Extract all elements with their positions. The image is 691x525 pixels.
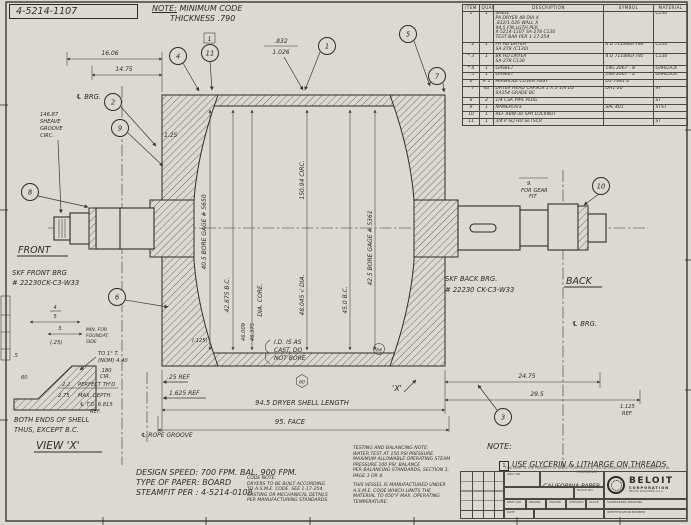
sheave-groove-callout: 146.87 SHEAVE GROOVE CIRC. — [40, 112, 63, 213]
drawing-sheet: 16.06 14.75 .832 1.026 1.25 40.5 BORE GA… — [0, 0, 691, 525]
svg-text:.5: .5 — [13, 353, 19, 359]
company-name: BELOIT — [629, 477, 674, 486]
svg-text:I.D. IS AS: I.D. IS AS — [274, 339, 302, 346]
svg-text:MIN. FOR: MIN. FOR — [86, 327, 107, 333]
svg-text:SHEAVE: SHEAVE — [40, 119, 61, 125]
svg-text:REF.: REF. — [622, 411, 633, 417]
svg-text:1.125: 1.125 — [620, 404, 636, 410]
svg-text:℄ BRG.: ℄ BRG. — [76, 93, 101, 101]
table-row: 1113/4 P SQ HD SETSCRST — [463, 119, 688, 126]
svg-text:VIEW 'X': VIEW 'X' — [36, 440, 80, 452]
parts-list: ITEM QUAN DESCRIPTION SYMBOL MATERIAL 11… — [462, 4, 688, 126]
svg-text:℄ BRG.: ℄ BRG. — [572, 320, 597, 328]
svg-text:48.045 √ DIA.: 48.045 √ DIA. — [299, 274, 306, 315]
front-journal — [54, 208, 154, 249]
drawn-cell: DRAWN WDW — [526, 499, 546, 509]
testing-note: TESTING AND BALANCING NOTE: WATER TEST A… — [353, 446, 461, 479]
svg-text:24.75: 24.75 — [518, 373, 535, 380]
svg-text:℄ ROPE GROOVE: ℄ ROPE GROOVE — [141, 432, 193, 439]
vessel-note: THIS VESSEL IS MANUFACTURED UNDER A.S.M.… — [353, 483, 461, 505]
svg-text:BOTH ENDS OF SHELL: BOTH ENDS OF SHELL — [14, 416, 89, 424]
svg-text:(.25): (.25) — [50, 340, 62, 346]
dept-cell: DEPT. NO. 642 — [504, 499, 526, 509]
svg-text:94.5 DRYER SHELL LENGTH: 94.5 DRYER SHELL LENGTH — [255, 399, 349, 407]
svg-text:16.06: 16.06 — [101, 50, 118, 57]
svg-text:CIRC.: CIRC. — [40, 133, 54, 139]
svg-text:CAST, DO: CAST, DO — [274, 347, 302, 354]
svg-text:CIR.: CIR. — [100, 374, 110, 380]
vertical-dimensions: 40.5 BORE GAGE # 5650 42.875 B.C. DIA. C… — [201, 110, 375, 350]
svg-text:2.75: 2.75 — [58, 393, 70, 399]
svg-text:(.125): (.125) — [192, 338, 208, 344]
company-logo-cell: BELOIT CORPORATION BELOIT, WISCONSIN U.S… — [604, 471, 687, 499]
testing-notes: TESTING AND BALANCING NOTE: WATER TEST A… — [353, 446, 461, 505]
svg-text:1.625 REF: 1.625 REF — [169, 390, 200, 397]
svg-text:℄ T.D. 6.815: ℄ T.D. 6.815 — [80, 402, 113, 408]
note-text-1: MINIMUM CODE — [179, 4, 242, 13]
svg-text:SIDE: SIDE — [86, 339, 97, 345]
svg-text:SKF BACK BRG.: SKF BACK BRG. — [445, 275, 497, 283]
location-cell: SANTA CLARA CALIF — [504, 487, 574, 499]
svg-text:60: 60 — [21, 375, 28, 381]
svg-text:1.026: 1.026 — [272, 49, 289, 56]
svg-text:2: 2 — [111, 99, 115, 107]
back-journal — [458, 204, 606, 250]
svg-text:29.5: 29.5 — [530, 391, 544, 398]
note-text-2: THICKNESS .790 — [170, 14, 242, 24]
svg-text:5: 5 — [53, 314, 57, 320]
table-row: * 31BK HD DRYER SA-278 C1304 D 71188GF78… — [463, 54, 688, 66]
svg-text:6: 6 — [115, 294, 120, 302]
svg-text:.25 REF: .25 REF — [167, 374, 190, 381]
note-label: NOTE: — [152, 4, 177, 13]
svg-text:1: 1 — [325, 43, 329, 51]
svg-text:4: 4 — [53, 305, 56, 311]
glycerin-note-label: NOTE: — [487, 442, 512, 451]
svg-text:DIA. CORE.: DIA. CORE. — [257, 283, 264, 316]
svg-text:7: 7 — [435, 73, 440, 81]
svg-text:2.2: 2.2 — [62, 382, 70, 388]
svg-text:TO 1° T.: TO 1° T. — [98, 351, 119, 357]
block-no-cell: BLOCK NO. 7 — [574, 487, 604, 499]
svg-text:40.5 BORE GAGE # 5650: 40.5 BORE GAGE # 5650 — [201, 194, 208, 269]
svg-text:60: 60 — [299, 380, 305, 386]
table-row: 11SHELL PA DRYER 48 DIA X .832/1.026 WAL… — [463, 11, 688, 42]
svg-text:FRONT: FRONT — [18, 245, 52, 256]
svg-text:3.: 3. — [58, 326, 63, 332]
svg-text:PERFECT TH'D: PERFECT TH'D — [78, 382, 115, 388]
code-note: CODE NOTE: DRYERS TO BE BUILT ACCORDING … — [247, 476, 342, 504]
svg-text:42.875 B.C.: 42.875 B.C. — [224, 277, 231, 312]
svg-text:4: 4 — [176, 53, 180, 61]
minimum-code-note: NOTE: MINIMUM CODE THICKNESS .790 — [152, 4, 242, 24]
dryer-shell-section — [150, 95, 458, 366]
svg-text:8: 8 — [28, 189, 33, 197]
svg-text:5: 5 — [406, 31, 410, 39]
table-row: * 21FR HD DRYER SA-278 (C130)4 D 71188GF… — [463, 42, 688, 54]
svg-text:45.0 B.C.: 45.0 B.C. — [342, 286, 349, 313]
svg-text:1.25: 1.25 — [164, 132, 178, 139]
svg-text:SKF FRONT BRG: SKF FRONT BRG — [12, 269, 67, 277]
table-row: 6# 1MANHOLE COVER ASSYD1-7681-2 — [463, 79, 688, 86]
svg-text:95. FACE: 95. FACE — [275, 418, 306, 426]
svg-text:.832: .832 — [274, 38, 288, 45]
svg-text:# 22230 CK-C3-W33: # 22230 CK-C3-W33 — [445, 286, 514, 294]
view-x-detail: 4 5 3. MIN. FOR FOUNDAT. SIDE (.25) .5 6… — [13, 305, 128, 452]
svg-text:NOT BORE: NOT BORE — [274, 355, 306, 362]
svg-text:(NOM) 4.40: (NOM) 4.40 — [98, 358, 128, 364]
svg-text:3: 3 — [501, 414, 505, 422]
svg-text:REF.: REF. — [90, 409, 101, 415]
order-number-cell: ORD. NO. 38243 — [504, 471, 540, 487]
svg-text:150.94 CIRC.: 150.94 CIRC. — [299, 160, 306, 199]
scale-cell: SCALE — [586, 499, 604, 509]
svg-text:42.5 BORE GAGE # 5361: 42.5 BORE GAGE # 5361 — [367, 210, 374, 285]
svg-text:BACK: BACK — [566, 276, 593, 287]
checked-cell: CHECKED SYP — [566, 499, 586, 509]
corner-drawing-number: 4-5214-1107 — [9, 4, 138, 19]
date-cell: DATE 8-5-74 — [504, 509, 534, 519]
table-row: * 740DRYER HEAD CAPSCR 1 X 3-1/4 LG SA35… — [463, 86, 688, 98]
svg-text:9.: 9. — [527, 181, 532, 187]
svg-text:MAX. DEPTH: MAX. DEPTH — [78, 393, 110, 399]
svg-text:46.375: 46.375 — [250, 322, 256, 341]
company-tagline: BELOIT, WISCONSIN U.S.A. — [629, 490, 674, 493]
revision-strip — [460, 471, 504, 519]
svg-text:9: 9 — [118, 125, 122, 133]
table-row: 91NAMEPLATESPL 401STST — [463, 105, 688, 112]
beloit-logo-icon — [607, 476, 625, 494]
traced-cell: TRACED R.R. — [546, 499, 566, 509]
table-row: 101REF RBW-30 SPR LOCKNUT — [463, 112, 688, 119]
title-block: ORD. NO. 38243 CALIFORNIA PAPER SANTA CL… — [460, 471, 687, 519]
svg-text:FOUNDAT.: FOUNDAT. — [86, 333, 109, 339]
drawing-number-cell: IDENTIFICATION NUMBER 4-5214-1107 — [604, 509, 687, 519]
customer-cell: CALIFORNIA PAPER — [540, 471, 604, 487]
svg-text:1: 1 — [208, 36, 212, 43]
svg-text:# 22230CK-C3-W33: # 22230CK-C3-W33 — [12, 279, 79, 287]
centerlines — [48, 86, 648, 468]
svg-text:11: 11 — [206, 50, 215, 58]
svg-text:10: 10 — [597, 183, 606, 191]
table-row: * 41GASKET14G 2067 - 8GARLOCK — [463, 66, 688, 73]
svg-text:THUS, EXCEPT B.C.: THUS, EXCEPT B.C. — [14, 426, 79, 434]
svg-text:146.87: 146.87 — [40, 112, 59, 118]
supersedes-cell: SUPERSEDES DRAWING MD-1034-7 — [604, 499, 687, 509]
svg-text:46.009: 46.009 — [241, 323, 247, 341]
svg-text:14.75: 14.75 — [115, 66, 132, 73]
table-row: * 51GASKET14G 2067 - 2GARLOCK — [463, 72, 688, 79]
svg-text:GROOVE: GROOVE — [40, 126, 63, 132]
svg-text:'X': 'X' — [392, 384, 402, 393]
drawing-title-cell: 48 DIA PAPER DRYER — [534, 509, 604, 519]
table-row: 821/4 CSK PIPE PLUGST — [463, 98, 688, 105]
svg-text:64: 64 — [376, 348, 382, 354]
svg-text:FIT: FIT — [529, 194, 538, 200]
